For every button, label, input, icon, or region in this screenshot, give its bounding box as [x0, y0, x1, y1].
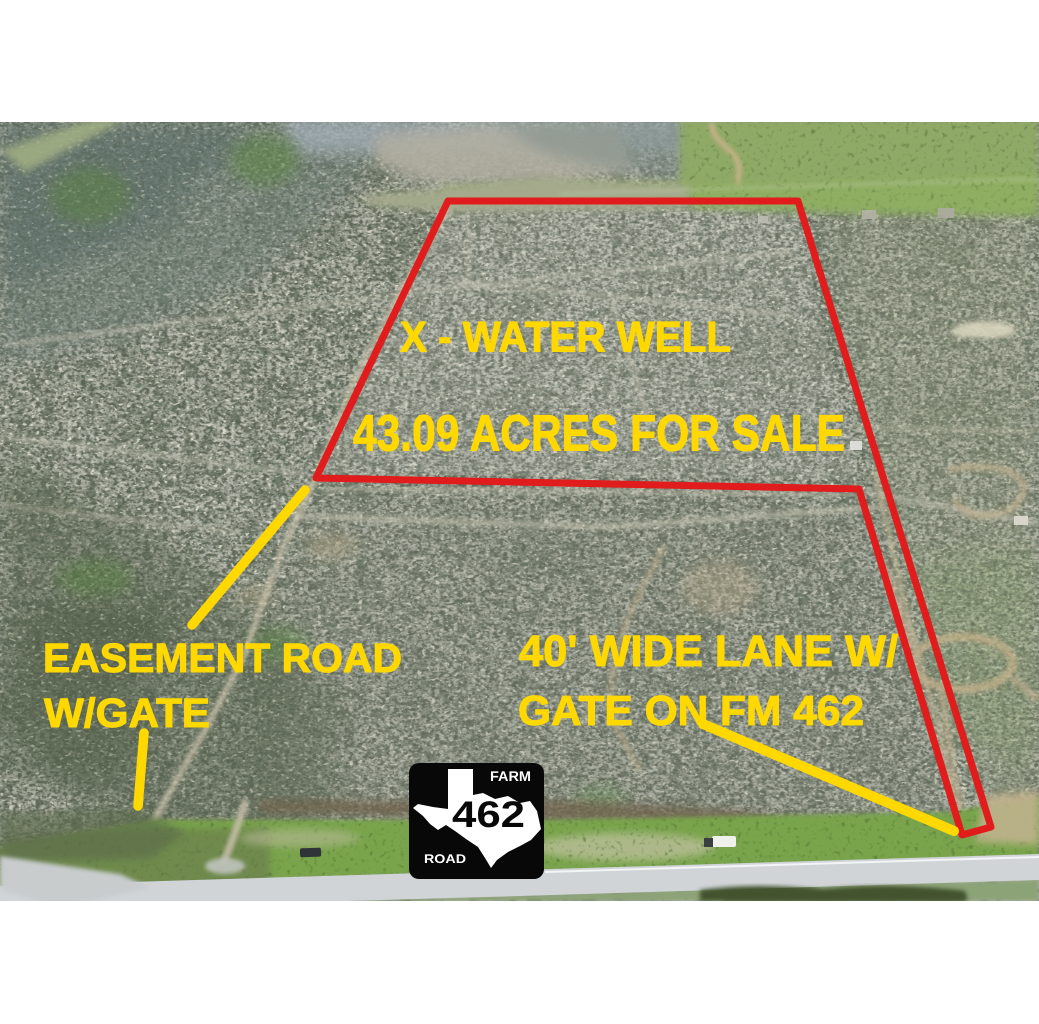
svg-text:GATE ON FM 462: GATE ON FM 462	[518, 687, 864, 734]
svg-text:W/GATE: W/GATE	[44, 690, 210, 736]
svg-text:FARM: FARM	[490, 768, 531, 784]
svg-text:EASEMENT ROAD: EASEMENT ROAD	[43, 635, 402, 681]
svg-text:ROAD: ROAD	[424, 852, 466, 866]
svg-text:43.09 ACRES FOR SALE: 43.09 ACRES FOR SALE	[353, 405, 845, 462]
svg-text:462: 462	[452, 794, 525, 835]
svg-text:40' WIDE LANE W/: 40' WIDE LANE W/	[519, 627, 898, 676]
svg-text:X - WATER WELL: X - WATER WELL	[400, 314, 731, 362]
